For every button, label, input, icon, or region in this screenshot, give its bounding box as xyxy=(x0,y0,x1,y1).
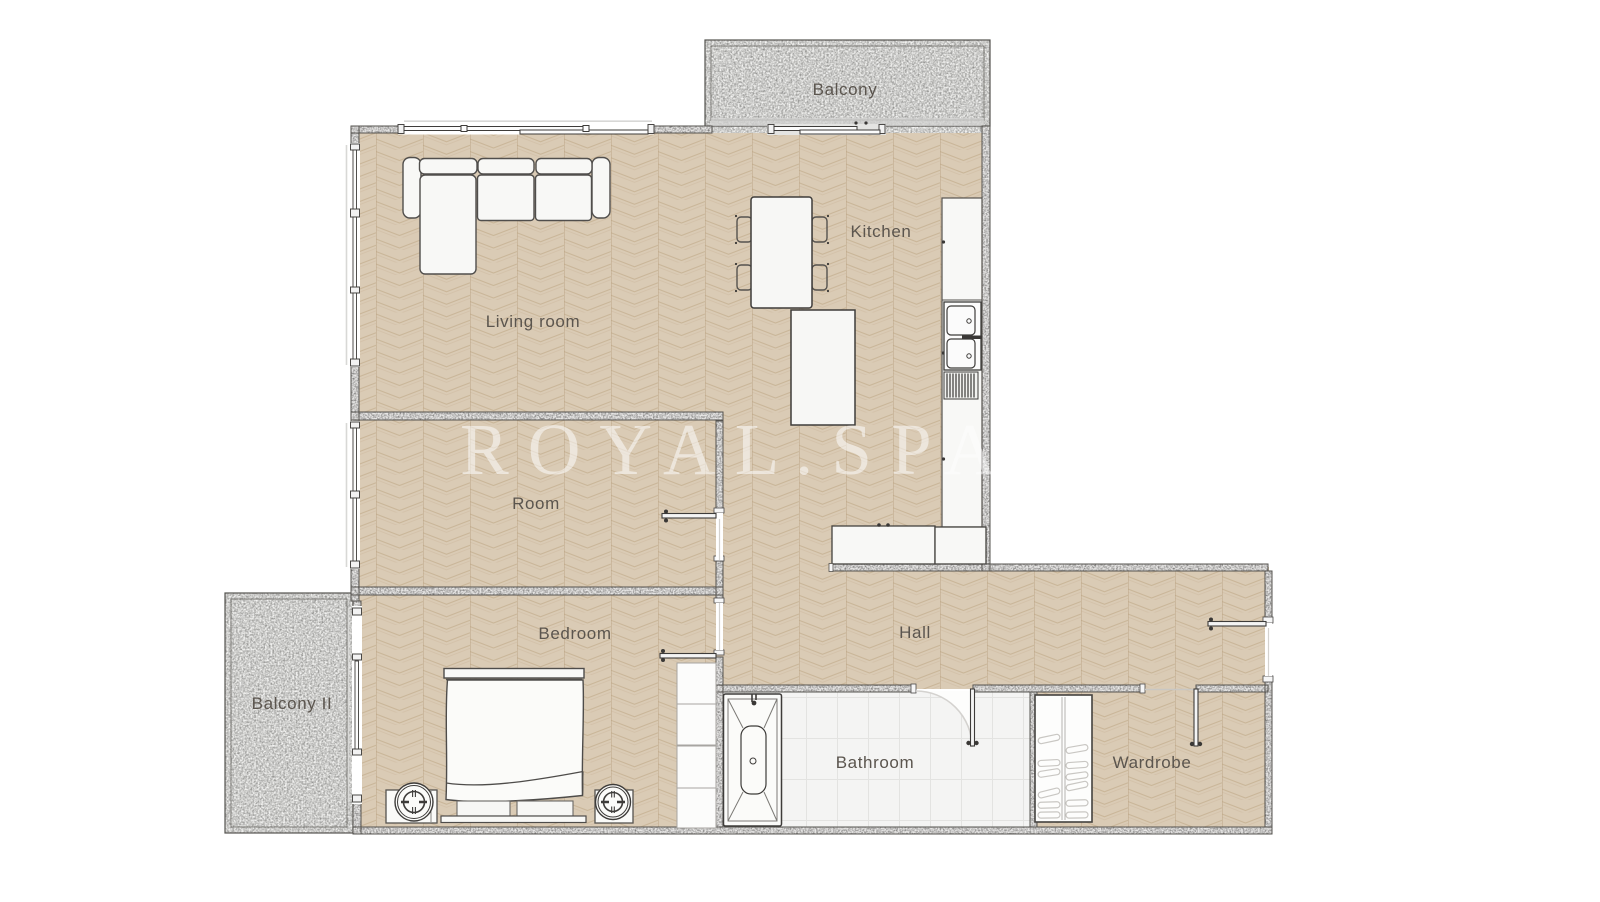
svg-text:Balcony: Balcony xyxy=(813,80,878,99)
svg-text:Room: Room xyxy=(512,494,560,513)
svg-text:Bathroom: Bathroom xyxy=(836,753,915,772)
svg-text:ROYAL . SPA: ROYAL . SPA xyxy=(460,409,1016,490)
svg-text:Balcony II: Balcony II xyxy=(252,694,333,713)
svg-text:Living room: Living room xyxy=(486,312,580,331)
svg-text:Kitchen: Kitchen xyxy=(851,222,912,241)
svg-text:Wardrobe: Wardrobe xyxy=(1113,753,1192,772)
svg-text:Bedroom: Bedroom xyxy=(538,624,611,643)
svg-text:Hall: Hall xyxy=(899,623,931,642)
